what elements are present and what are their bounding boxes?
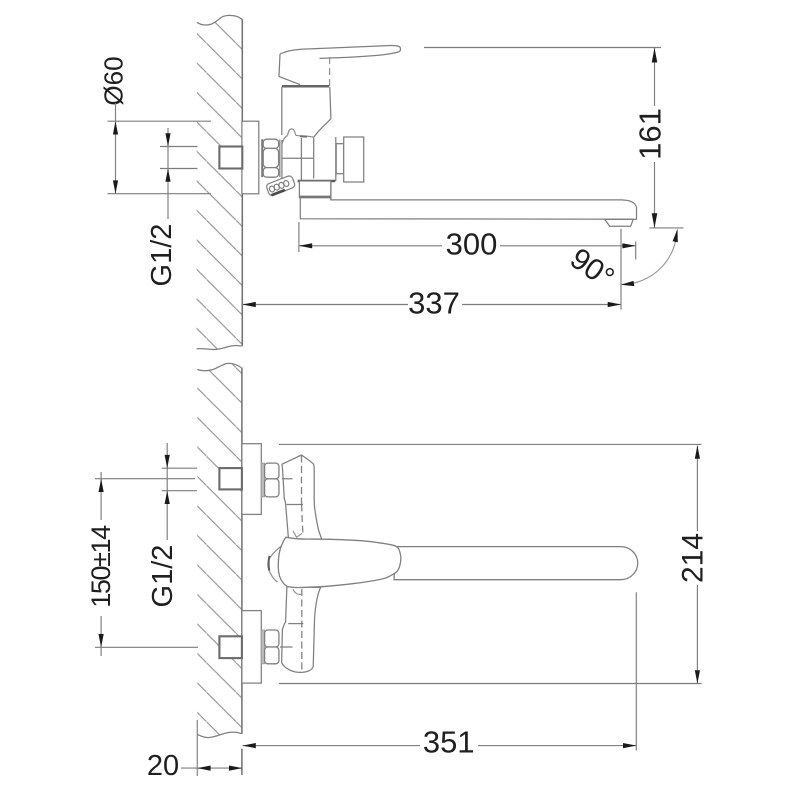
svg-text:161: 161 [633, 108, 668, 160]
svg-text:150±14: 150±14 [86, 525, 116, 608]
svg-text:G1/2: G1/2 [146, 224, 178, 287]
svg-text:351: 351 [423, 725, 475, 760]
svg-text:337: 337 [408, 286, 460, 321]
svg-text:G1/2: G1/2 [147, 545, 179, 608]
svg-text:214: 214 [677, 533, 710, 583]
svg-text:Ø60: Ø60 [99, 56, 129, 105]
svg-text:20: 20 [147, 750, 179, 782]
svg-text:300: 300 [446, 227, 498, 262]
